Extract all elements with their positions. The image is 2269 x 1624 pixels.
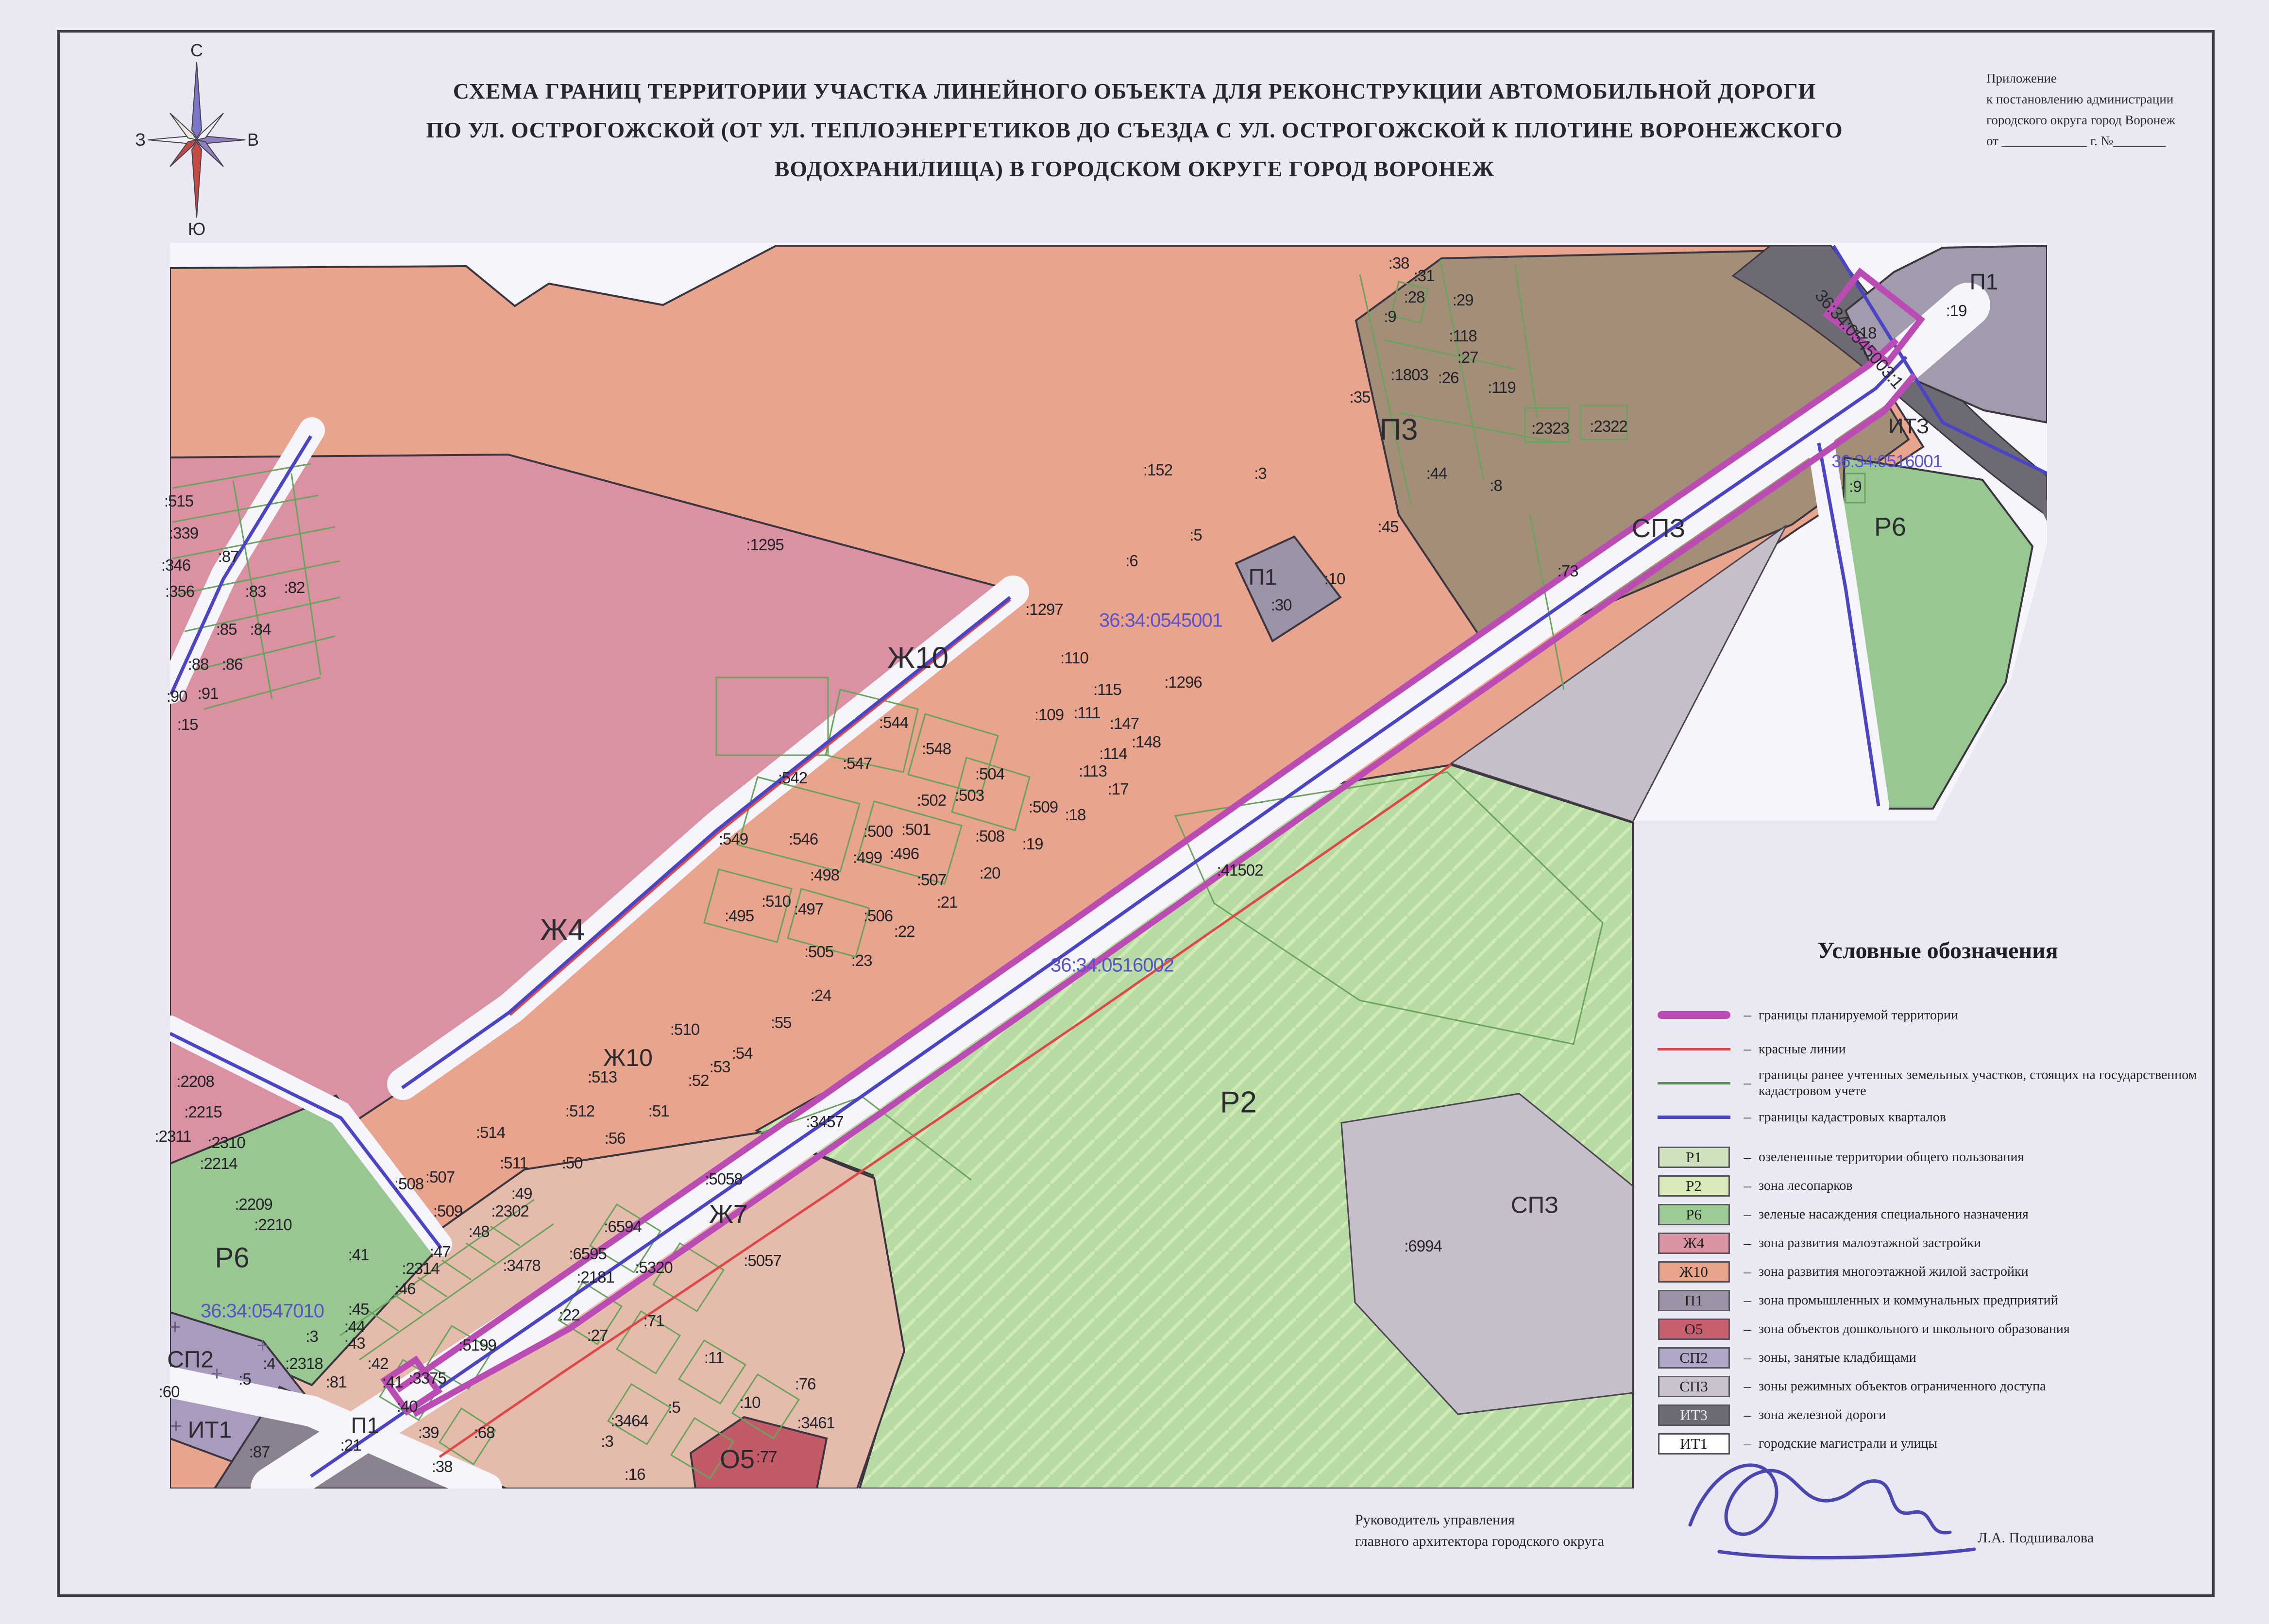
zone-swatch: СП3 [1658,1376,1730,1397]
footer-role-line-2: главного архитектора городского округа [1355,1531,1604,1552]
legend-title: Условные обозначения [1651,937,2224,964]
legend-zone-label: зона развития многоэтажной жилой застрой… [1759,1264,2029,1280]
legend-zone-label: зоны режимных объектов ограниченного дос… [1759,1378,2046,1394]
legend-line-item: –границы ранее учтенных земельных участк… [1651,1066,2224,1100]
legend-zone-label: зоны, занятые кладбищами [1759,1350,1916,1366]
legend-line-item: –границы кадастровых кварталов [1651,1100,2224,1134]
red-line-symbol [1658,1048,1730,1050]
zone-swatch: ИТ3 [1658,1404,1730,1426]
legend-zone-items: Р1–озелененные территории общего пользов… [1651,1143,2224,1458]
green-line-symbol [1658,1082,1730,1084]
legend-zone-label: озелененные территории общего пользовани… [1759,1149,2024,1165]
zone-swatch: Ж10 [1658,1261,1730,1283]
legend-zone-label: зона объектов дошкольного и школьного об… [1759,1321,2070,1337]
legend-line-item: –красные линии [1651,1032,2224,1066]
legend-zone-label: городские магистрали и улицы [1759,1436,1937,1452]
zone-swatch: П1 [1658,1290,1730,1311]
legend-zone-label: зона железной дороги [1759,1407,1886,1423]
legend-zone-item: ИТ3–зона железной дороги [1651,1401,2224,1429]
legend-line-item: –границы планируемой территории [1651,998,2224,1032]
zone-swatch: СП2 [1658,1347,1730,1369]
legend: Условные обозначения –границы планируемо… [1651,937,2224,1458]
scheme-page: С Ю З В СХЕМА ГРАНИЦ ТЕРРИТОРИИ УЧАСТКА … [0,0,2269,1624]
legend-zone-item: П1–зона промышленных и коммунальных пред… [1651,1286,2224,1315]
legend-zone-item: О5–зона объектов дошкольного и школьного… [1651,1315,2224,1343]
legend-zone-label: зона промышленных и коммунальных предпри… [1759,1292,2058,1308]
zone-swatch: О5 [1658,1319,1730,1340]
legend-zone-item: Ж4–зона развития малоэтажной застройки [1651,1229,2224,1257]
legend-zone-label: зона развития малоэтажной застройки [1759,1235,1981,1251]
legend-line-label: красные линии [1759,1041,1846,1057]
footer-role: Руководитель управления главного архитек… [1355,1509,1604,1552]
zone-swatch: ИТ1 [1658,1433,1730,1455]
legend-zone-item: Р6–зеленые насаждения специального назна… [1651,1200,2224,1229]
legend-zone-item: Ж10–зона развития многоэтажной жилой зас… [1651,1257,2224,1286]
legend-zone-item: Р2–зона лесопарков [1651,1171,2224,1200]
legend-zone-label: зеленые насаждения специального назначен… [1759,1206,2029,1222]
legend-zone-item: СП3–зоны режимных объектов ограниченного… [1651,1372,2224,1401]
legend-line-label: границы кадастровых кварталов [1759,1109,1946,1125]
legend-zone-item: СП2–зоны, занятые кладбищами [1651,1343,2224,1372]
blue-line-symbol [1658,1116,1730,1119]
legend-line-items: –границы планируемой территории–красные … [1651,998,2224,1134]
legend-zone-label: зона лесопарков [1759,1178,1853,1194]
legend-zone-item: Р1–озелененные территории общего пользов… [1651,1143,2224,1171]
legend-line-label: границы планируемой территории [1759,1007,1958,1023]
zone-swatch: Р2 [1658,1175,1730,1197]
legend-line-label: границы ранее учтенных земельных участко… [1759,1067,2224,1099]
zone-swatch: Р6 [1658,1204,1730,1225]
footer-role-line-1: Руководитель управления [1355,1509,1604,1531]
footer-signatory-name: Л.А. Подшивалова [1978,1530,2094,1546]
magenta-line-symbol [1658,1011,1730,1019]
zone-swatch: Р1 [1658,1147,1730,1168]
zone-swatch: Ж4 [1658,1233,1730,1254]
signature [1661,1452,2001,1578]
